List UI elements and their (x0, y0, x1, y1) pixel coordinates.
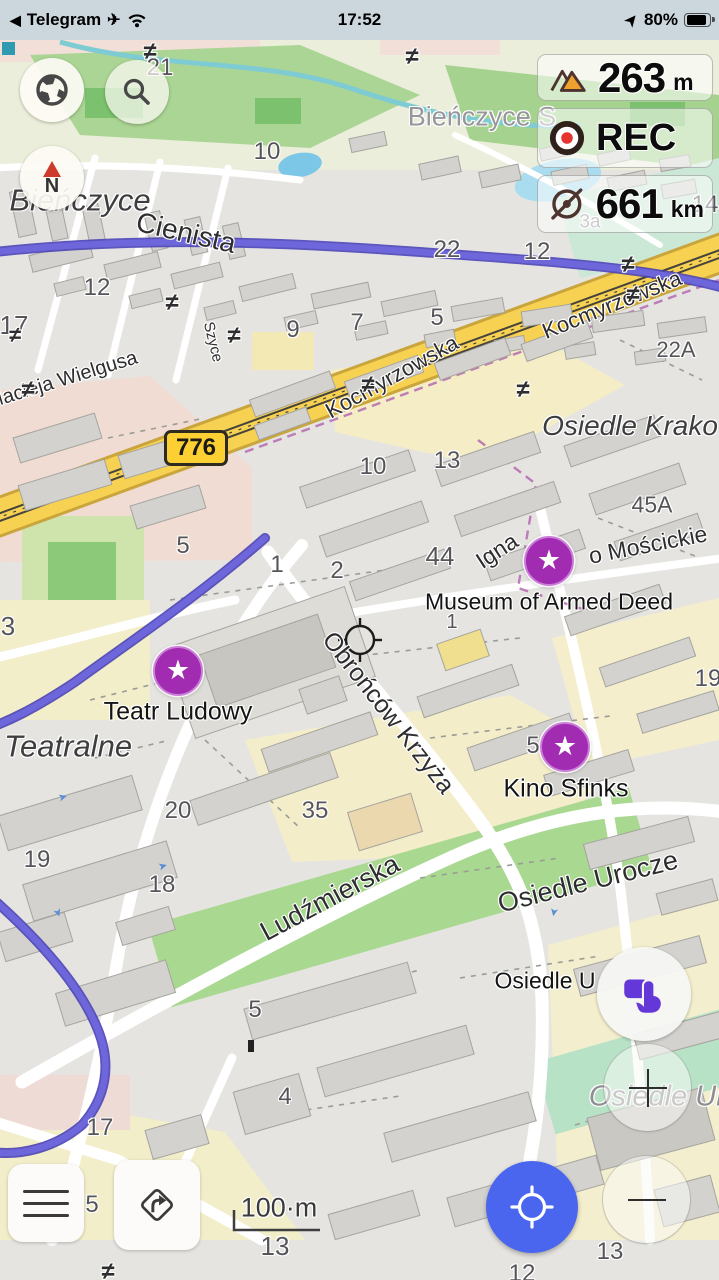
search-icon (118, 73, 156, 111)
radius-value: 661 (596, 180, 663, 228)
touch-move-map-icon (618, 968, 670, 1020)
poi-marker-kino-sfinks[interactable]: ★ (540, 722, 590, 772)
search-button[interactable] (105, 60, 169, 124)
radius-ruler-icon (546, 182, 588, 226)
location-target-icon (507, 1182, 557, 1232)
recording-label: REC (596, 117, 676, 160)
status-right-cluster: ➤ 80% (625, 10, 719, 30)
star-icon: ★ (537, 547, 561, 574)
trip-recording-widget[interactable]: REC (537, 108, 713, 168)
directions-button[interactable] (114, 1160, 200, 1250)
compass-button[interactable]: N (20, 146, 84, 210)
altitude-value: 263 (598, 54, 665, 102)
altitude-mountain-icon (546, 61, 590, 95)
status-bar: ◀ Telegram ✈ 17:52 ➤ 80% (0, 0, 719, 40)
plus-icon (625, 1065, 671, 1111)
map-widgets-panel: 263 m REC 661 km (537, 54, 713, 233)
my-location-button[interactable] (486, 1161, 578, 1253)
radius-ruler-widget[interactable]: 661 km (537, 175, 713, 233)
osmand-map-screen: { "status_bar": {"back_glyph":"◀","app":… (0, 0, 719, 1280)
poi-marker-museum-of-armed-deed[interactable]: ★ (524, 536, 574, 586)
altitude-widget[interactable]: 263 m (537, 54, 713, 101)
turn-right-navigation-icon (130, 1178, 184, 1232)
zoom-out-button[interactable] (603, 1156, 690, 1243)
globe-icon (32, 70, 72, 110)
altitude-unit: m (673, 69, 693, 96)
compass-letter: N (45, 176, 59, 196)
star-icon: ★ (166, 657, 190, 684)
minus-icon (624, 1177, 670, 1223)
menu-button[interactable] (8, 1164, 84, 1242)
star-icon: ★ (553, 733, 577, 760)
route-number-badge: 776 (164, 430, 228, 466)
poi-marker-teatr-ludowy[interactable]: ★ (153, 646, 203, 696)
battery-icon (684, 13, 711, 28)
hamburger-icon (23, 1190, 69, 1217)
status-time: 17:52 (0, 10, 719, 30)
radius-unit: km (671, 196, 704, 223)
battery-percent-label: 80% (644, 10, 678, 30)
zoom-in-button[interactable] (604, 1044, 691, 1131)
map-gesture-mode-button[interactable] (597, 947, 691, 1041)
map-source-globe-button[interactable] (20, 58, 84, 122)
record-icon (546, 117, 588, 159)
